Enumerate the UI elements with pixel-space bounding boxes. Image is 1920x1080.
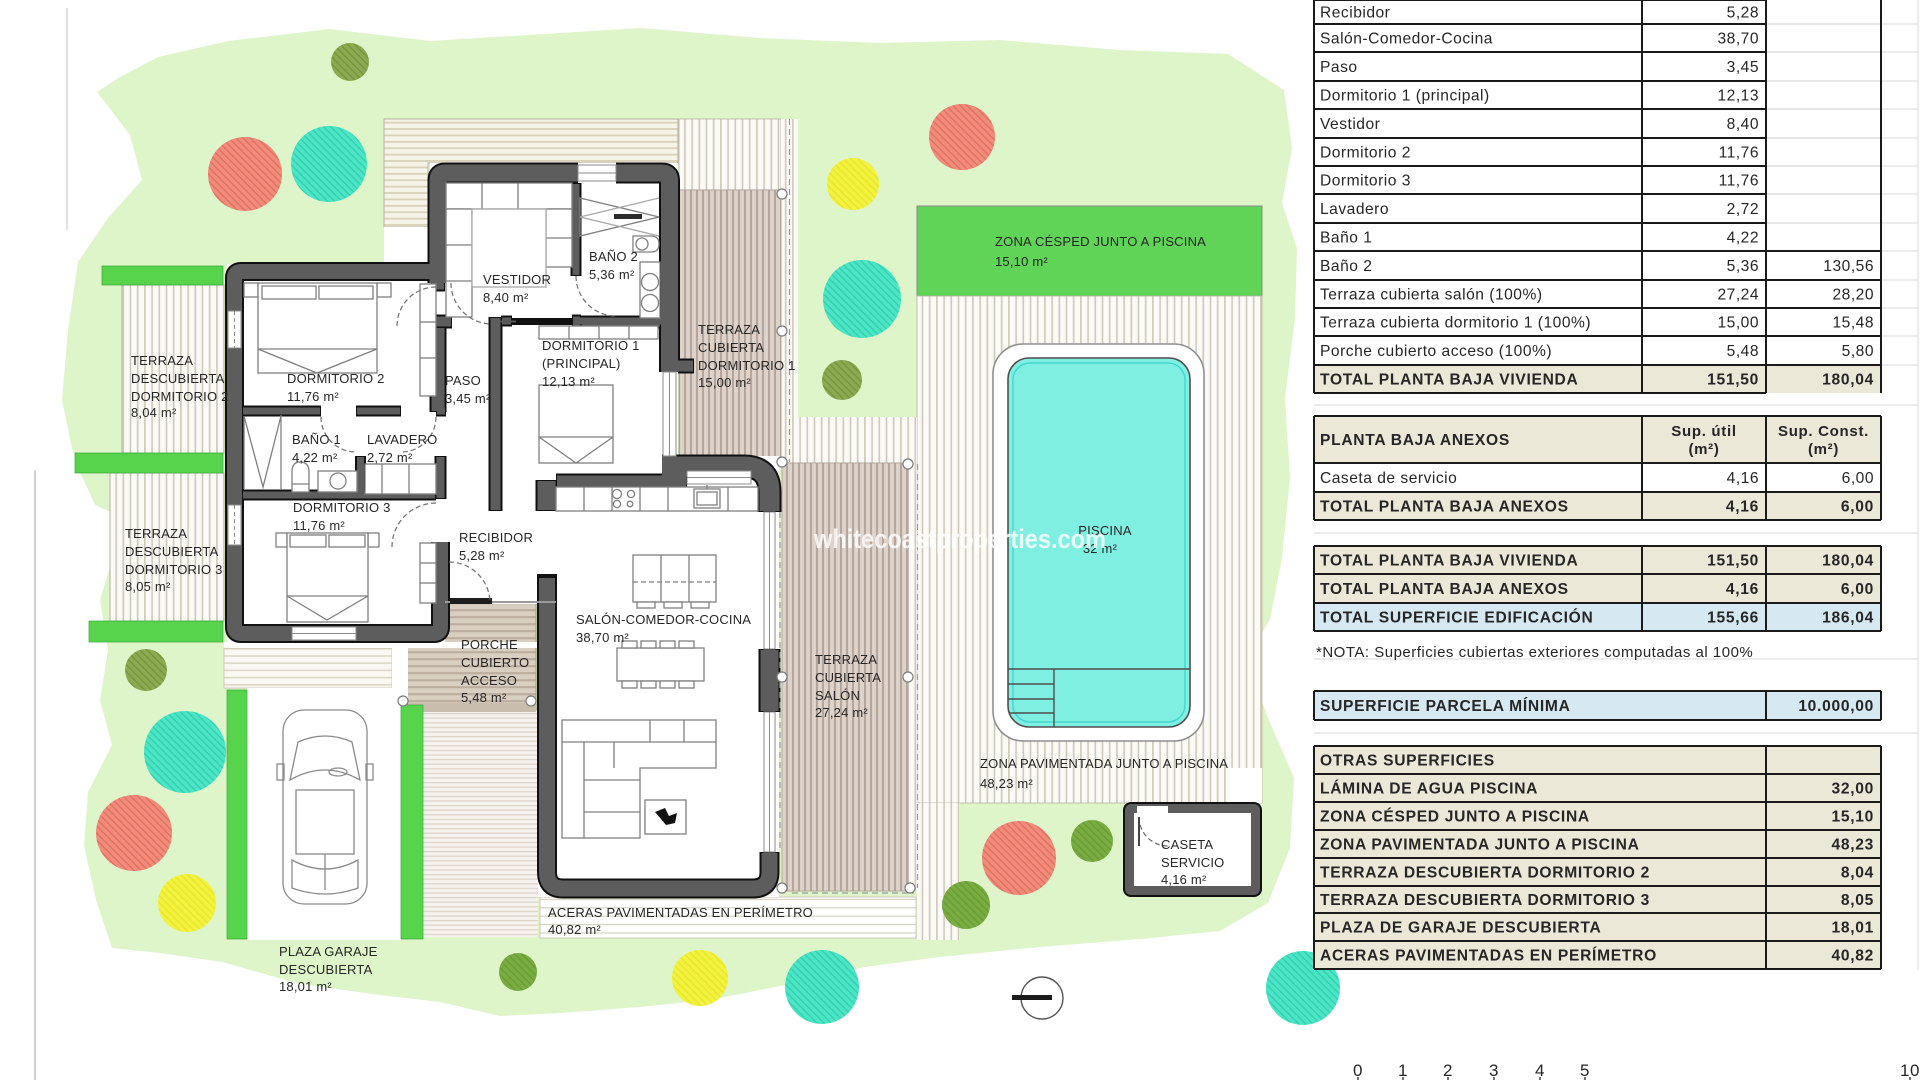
svg-text:180,04: 180,04 xyxy=(1822,553,1874,570)
svg-text:130,56: 130,56 xyxy=(1823,258,1874,275)
svg-text:5,36 m²: 5,36 m² xyxy=(589,267,635,282)
svg-text:10.000,00: 10.000,00 xyxy=(1798,698,1874,715)
svg-text:TERRAZA DESCUBIERTA DORMITORIO: TERRAZA DESCUBIERTA DORMITORIO 2 xyxy=(1320,865,1650,882)
svg-text:TERRAZA: TERRAZA xyxy=(815,652,877,667)
svg-text:5,36: 5,36 xyxy=(1727,258,1759,275)
svg-text:5,28 m²: 5,28 m² xyxy=(459,548,505,563)
svg-text:32,00: 32,00 xyxy=(1831,781,1874,798)
svg-text:15,10: 15,10 xyxy=(1831,809,1874,826)
svg-text:15,00: 15,00 xyxy=(1717,315,1759,332)
svg-text:5,48 m²: 5,48 m² xyxy=(461,690,507,705)
svg-text:180,04: 180,04 xyxy=(1822,372,1874,389)
svg-text:BAÑO 1: BAÑO 1 xyxy=(292,432,341,447)
svg-text:186,04: 186,04 xyxy=(1822,610,1874,627)
svg-text:Recibidor: Recibidor xyxy=(1320,5,1390,22)
svg-text:ZONA PAVIMENTADA JUNTO A PISCI: ZONA PAVIMENTADA JUNTO A PISCINA xyxy=(980,756,1228,771)
svg-text:RECIBIDOR: RECIBIDOR xyxy=(459,530,533,545)
svg-text:DORMITORIO 1: DORMITORIO 1 xyxy=(698,358,796,373)
svg-text:151,50: 151,50 xyxy=(1707,372,1759,389)
svg-text:4,16: 4,16 xyxy=(1726,499,1759,516)
svg-text:DESCUBIERTA: DESCUBIERTA xyxy=(279,962,373,977)
svg-text:15,00 m²: 15,00 m² xyxy=(698,375,751,390)
svg-text:151,50: 151,50 xyxy=(1707,553,1759,570)
svg-text:15,48: 15,48 xyxy=(1832,315,1874,332)
svg-text:(m²): (m²) xyxy=(1688,441,1719,458)
svg-text:4,22: 4,22 xyxy=(1727,230,1759,247)
svg-text:CUBIERTA: CUBIERTA xyxy=(698,340,764,355)
svg-text:4,22 m²: 4,22 m² xyxy=(292,450,338,465)
svg-text:48,23: 48,23 xyxy=(1831,837,1874,854)
svg-text:TERRAZA: TERRAZA xyxy=(698,322,760,337)
svg-text:8,40 m²: 8,40 m² xyxy=(483,290,529,305)
svg-text:8,40: 8,40 xyxy=(1727,116,1759,133)
svg-text:(PRINCIPAL): (PRINCIPAL) xyxy=(542,356,621,371)
svg-text:DESCUBIERTA: DESCUBIERTA xyxy=(131,371,225,386)
svg-text:15,10 m²: 15,10 m² xyxy=(995,254,1048,269)
svg-text:Baño 2: Baño 2 xyxy=(1320,258,1372,275)
svg-text:Dormitorio 3: Dormitorio 3 xyxy=(1320,173,1411,190)
svg-text:*NOTA: Superficies cubiertas e: *NOTA: Superficies cubiertas exteriores … xyxy=(1316,644,1753,661)
svg-text:SALÓN-COMEDOR-COCINA: SALÓN-COMEDOR-COCINA xyxy=(576,612,751,627)
svg-text:11,76 m²: 11,76 m² xyxy=(293,518,345,533)
svg-text:TERRAZA DESCUBIERTA DORMITORIO: TERRAZA DESCUBIERTA DORMITORIO 3 xyxy=(1320,892,1650,909)
svg-text:PASO: PASO xyxy=(445,373,481,388)
svg-text:38,70 m²: 38,70 m² xyxy=(576,630,629,645)
svg-text:Lavadero: Lavadero xyxy=(1320,201,1389,218)
svg-text:11,76: 11,76 xyxy=(1719,173,1759,190)
svg-text:PLAZA DE GARAJE DESCUBIERTA: PLAZA DE GARAJE DESCUBIERTA xyxy=(1320,920,1601,937)
svg-text:Vestidor: Vestidor xyxy=(1320,116,1380,133)
svg-text:ACERAS PAVIMENTADAS EN PERÍMET: ACERAS PAVIMENTADAS EN PERÍMETRO xyxy=(1320,946,1657,965)
svg-text:Caseta de servicio: Caseta de servicio xyxy=(1320,470,1457,487)
svg-text:6,00: 6,00 xyxy=(1841,581,1874,598)
svg-text:2,72 m²: 2,72 m² xyxy=(367,450,413,465)
svg-text:PORCHE: PORCHE xyxy=(461,637,518,652)
svg-text:DORMITORIO 2: DORMITORIO 2 xyxy=(287,371,385,386)
svg-text:TOTAL PLANTA BAJA ANEXOS: TOTAL PLANTA BAJA ANEXOS xyxy=(1320,581,1569,598)
svg-text:2,72: 2,72 xyxy=(1727,201,1759,218)
svg-text:28,20: 28,20 xyxy=(1832,287,1874,304)
svg-text:4,16: 4,16 xyxy=(1726,581,1759,598)
svg-text:ZONA CÉSPED JUNTO A PISCINA: ZONA CÉSPED JUNTO A PISCINA xyxy=(1320,807,1590,826)
svg-text:CASETA: CASETA xyxy=(1161,837,1213,852)
svg-text:ACERAS PAVIMENTADAS EN PERÍMET: ACERAS PAVIMENTADAS EN PERÍMETRO xyxy=(548,905,813,920)
svg-text:Paso: Paso xyxy=(1320,59,1358,76)
svg-text:11,76 m²: 11,76 m² xyxy=(287,389,339,404)
svg-text:4,16: 4,16 xyxy=(1727,470,1759,487)
svg-text:8,05 m²: 8,05 m² xyxy=(125,579,171,594)
svg-text:Dormitorio 2: Dormitorio 2 xyxy=(1320,145,1411,162)
svg-text:Dormitorio 1 (principal): Dormitorio 1 (principal) xyxy=(1320,88,1490,105)
svg-text:38,70: 38,70 xyxy=(1717,31,1759,48)
svg-text:SERVICIO: SERVICIO xyxy=(1161,855,1225,870)
svg-text:TOTAL PLANTA BAJA VIVIENDA: TOTAL PLANTA BAJA VIVIENDA xyxy=(1320,372,1578,389)
svg-text:LÁMINA DE AGUA PISCINA: LÁMINA DE AGUA PISCINA xyxy=(1320,779,1538,798)
svg-text:BAÑO 2: BAÑO 2 xyxy=(589,249,638,264)
svg-text:ACCESO: ACCESO xyxy=(461,673,517,688)
svg-text:Porche cubierto acceso (100%): Porche cubierto acceso (100%) xyxy=(1320,343,1552,360)
svg-text:6,00: 6,00 xyxy=(1841,499,1874,516)
svg-text:8,04 m²: 8,04 m² xyxy=(131,405,177,420)
svg-text:SUPERFICIE PARCELA MÍNIMA: SUPERFICIE PARCELA MÍNIMA xyxy=(1320,696,1571,715)
svg-text:27,24: 27,24 xyxy=(1717,287,1759,304)
svg-text:18,01: 18,01 xyxy=(1831,920,1874,937)
svg-text:5,48: 5,48 xyxy=(1727,343,1759,360)
svg-text:ZONA CÉSPED JUNTO A PISCINA: ZONA CÉSPED JUNTO A PISCINA xyxy=(995,234,1206,249)
svg-text:5,28: 5,28 xyxy=(1727,5,1759,22)
svg-text:TOTAL PLANTA BAJA VIVIENDA: TOTAL PLANTA BAJA VIVIENDA xyxy=(1320,553,1578,570)
svg-text:DESCUBIERTA: DESCUBIERTA xyxy=(125,544,219,559)
svg-text:12,13 m²: 12,13 m² xyxy=(542,374,595,389)
svg-text:27,24 m²: 27,24 m² xyxy=(815,705,868,720)
svg-text:DORMITORIO 2: DORMITORIO 2 xyxy=(131,389,229,404)
svg-text:6,00: 6,00 xyxy=(1842,470,1874,487)
svg-text:155,66: 155,66 xyxy=(1707,610,1759,627)
svg-text:3,45: 3,45 xyxy=(1727,59,1759,76)
svg-text:Terraza cubierta salón (100%): Terraza cubierta salón (100%) xyxy=(1320,287,1543,304)
svg-text:5,80: 5,80 xyxy=(1842,343,1874,360)
svg-text:8,05: 8,05 xyxy=(1841,892,1874,909)
svg-text:3,45 m²: 3,45 m² xyxy=(445,391,491,406)
svg-text:40,82: 40,82 xyxy=(1831,948,1874,965)
svg-text:TOTAL SUPERFICIE EDIFICACIÓN: TOTAL SUPERFICIE EDIFICACIÓN xyxy=(1320,608,1593,627)
svg-text:Salón-Comedor-Cocina: Salón-Comedor-Cocina xyxy=(1320,31,1493,48)
svg-text:ZONA PAVIMENTADA JUNTO A PISCI: ZONA PAVIMENTADA JUNTO A PISCINA xyxy=(1320,837,1640,854)
svg-text:48,23 m²: 48,23 m² xyxy=(980,776,1033,791)
svg-text:LAVADERO: LAVADERO xyxy=(367,432,437,447)
svg-text:DORMITORIO 3: DORMITORIO 3 xyxy=(293,500,391,515)
svg-text:DORMITORIO 3: DORMITORIO 3 xyxy=(125,562,223,577)
svg-text:Sup. útil: Sup. útil xyxy=(1671,423,1736,440)
svg-text:11,76: 11,76 xyxy=(1719,145,1759,162)
svg-text:PLAZA GARAJE: PLAZA GARAJE xyxy=(279,944,378,959)
svg-text:DORMITORIO 1: DORMITORIO 1 xyxy=(542,338,640,353)
svg-text:whitecoastproperties.com: whitecoastproperties.com xyxy=(813,524,1106,554)
svg-text:TERRAZA: TERRAZA xyxy=(125,526,187,541)
svg-text:Sup. Const.: Sup. Const. xyxy=(1778,423,1869,440)
svg-text:SALÓN: SALÓN xyxy=(815,688,860,703)
svg-text:CUBIERTO: CUBIERTO xyxy=(461,655,529,670)
svg-text:TERRAZA: TERRAZA xyxy=(131,353,193,368)
svg-text:Baño 1: Baño 1 xyxy=(1320,230,1372,247)
svg-text:40,82 m²: 40,82 m² xyxy=(548,922,601,937)
svg-text:CUBIERTA: CUBIERTA xyxy=(815,670,881,685)
svg-text:12,13: 12,13 xyxy=(1717,88,1759,105)
svg-text:TOTAL PLANTA BAJA ANEXOS: TOTAL PLANTA BAJA ANEXOS xyxy=(1320,499,1569,516)
svg-text:PLANTA BAJA ANEXOS: PLANTA BAJA ANEXOS xyxy=(1320,432,1510,449)
svg-text:8,04: 8,04 xyxy=(1841,865,1874,882)
svg-text:Terraza cubierta dormitorio 1: Terraza cubierta dormitorio 1 (100%) xyxy=(1320,315,1591,332)
svg-text:VESTIDOR: VESTIDOR xyxy=(483,272,551,287)
svg-text:OTRAS SUPERFICIES: OTRAS SUPERFICIES xyxy=(1320,753,1495,770)
svg-text:4,16 m²: 4,16 m² xyxy=(1161,872,1207,887)
svg-text:18,01 m²: 18,01 m² xyxy=(279,979,332,994)
svg-text:(m²): (m²) xyxy=(1808,441,1839,458)
